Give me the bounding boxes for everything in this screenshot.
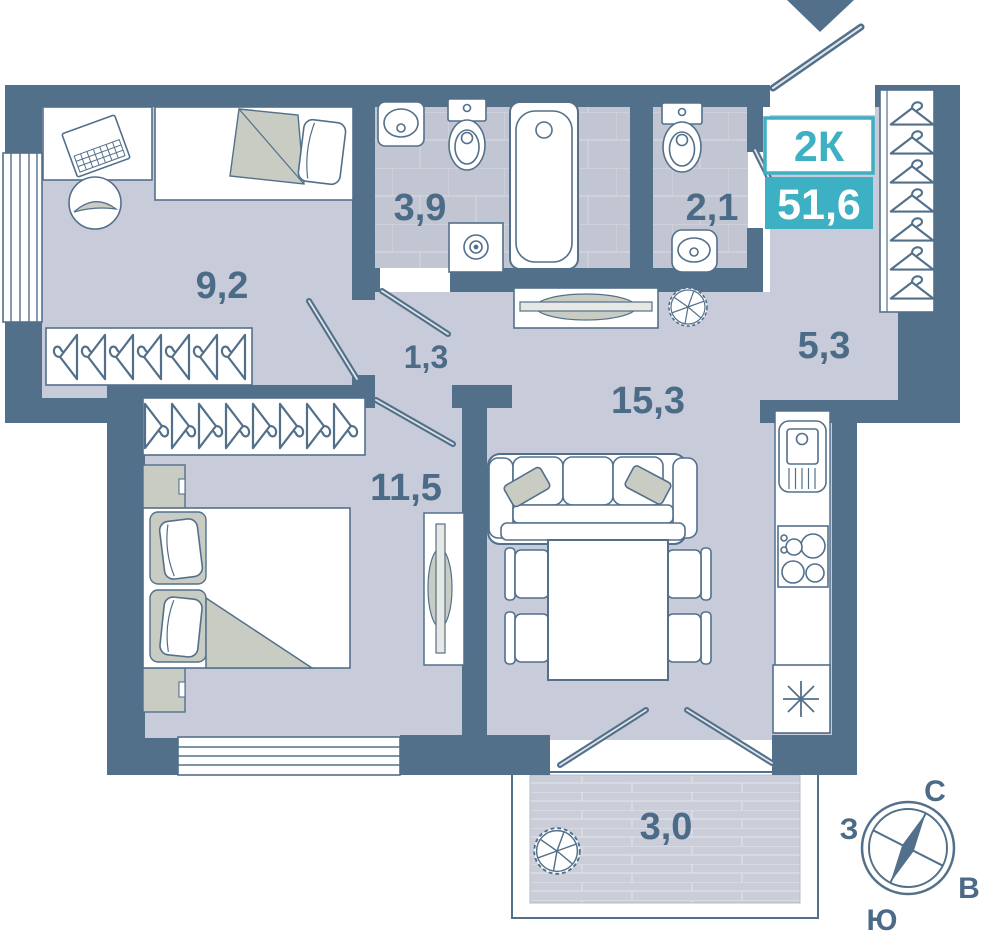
stove-icon: [778, 526, 828, 587]
console-bench-icon: [514, 288, 658, 328]
compass-north-label: С: [924, 775, 946, 808]
room-label-balcony: 3,0: [640, 806, 693, 848]
sofa-icon: [488, 454, 697, 544]
apartment-area-label: 51,6: [777, 181, 861, 229]
kitchen-sink-icon: [779, 421, 826, 492]
entrance-threshold: [770, 85, 875, 115]
entrance-door-swing-icon: [773, 27, 861, 88]
pillow-icon: [159, 596, 203, 658]
tv-icon: [424, 513, 464, 665]
wash-basin-icon: [672, 230, 717, 272]
compass-icon: С З В Ю: [840, 775, 980, 937]
compass-west-label: З: [840, 813, 859, 846]
compass-south-label: Ю: [867, 904, 898, 937]
wardrobe-hangers-icon: [880, 90, 934, 312]
window-icon: [3, 153, 42, 322]
room-label-hallway: 5,3: [798, 325, 851, 367]
room-label-living-kitchen: 15,3: [611, 380, 685, 422]
room-label-bedroom-small: 9,2: [196, 265, 249, 307]
wardrobe-hangers-icon: [143, 398, 365, 455]
room-label-bedroom-main: 11,5: [370, 467, 442, 509]
room-label-bathroom: 3,9: [394, 187, 447, 229]
room-label-corridor: 1,3: [404, 339, 448, 375]
entrance-arrow-icon: [787, 0, 854, 32]
bathtub-icon: [510, 102, 578, 269]
floor-plan: 2К 51,6 9,2 3,9 2,1 5,3 1,3 15,3 11,5 3,…: [0, 0, 1000, 951]
pillow-icon: [159, 518, 204, 580]
nightstand-icon: [143, 668, 185, 712]
dining-table-icon: [548, 540, 668, 680]
wardrobe-hangers-icon: [46, 328, 252, 385]
window-icon: [178, 737, 400, 775]
plant-icon: [534, 828, 580, 874]
toilet-icon: [448, 99, 486, 170]
washing-machine-icon: [449, 223, 503, 272]
floor-plan-svg: 2К 51,6 9,2 3,9 2,1 5,3 1,3 15,3 11,5 3,…: [0, 0, 1000, 951]
apartment-type-label: 2К: [794, 123, 845, 171]
compass-needle: [890, 813, 925, 882]
apartment-badge: 2К 51,6: [765, 118, 873, 229]
pillow-icon: [297, 119, 346, 186]
toilet-icon: [662, 103, 702, 172]
room-label-wc: 2,1: [686, 187, 739, 229]
fridge-icon: [773, 665, 830, 733]
double-bed-icon: [143, 508, 350, 668]
compass-east-label: В: [958, 872, 980, 905]
single-bed-icon: [155, 107, 353, 200]
office-chair-icon: [69, 177, 121, 229]
wash-basin-icon: [378, 102, 424, 146]
plant-icon: [669, 288, 707, 326]
snowflake-icon: [783, 681, 819, 717]
nightstand-icon: [143, 465, 185, 509]
